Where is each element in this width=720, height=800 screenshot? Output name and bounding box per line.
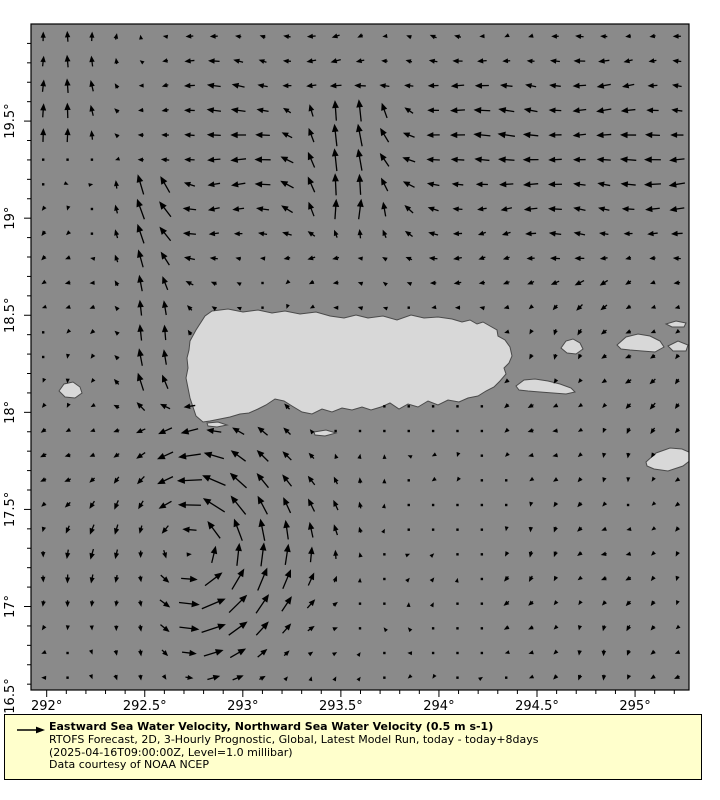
x-tick-label: 295°: [619, 699, 650, 714]
y-tick-label: 18°: [3, 401, 18, 424]
x-tick-label: 293°: [227, 699, 258, 714]
map-plot: 292°292.5°293°293.5°294°294.5°295°19.5°1…: [0, 0, 720, 720]
legend-box: Eastward Sea Water Velocity, Northward S…: [4, 714, 702, 780]
x-tick-label: 294.5°: [515, 699, 559, 714]
y-tick-label: 17.5°: [3, 492, 18, 527]
x-tick-label: 293.5°: [319, 699, 363, 714]
legend-text: Eastward Sea Water Velocity, Northward S…: [49, 721, 539, 772]
y-tick-label: 19.5°: [3, 103, 18, 138]
x-tick-label: 294°: [423, 699, 454, 714]
y-tick-label: 17°: [3, 595, 18, 618]
y-tick-label: 18.5°: [3, 298, 18, 333]
y-tick-label: 19°: [3, 207, 18, 230]
x-tick-label: 292.5°: [123, 699, 167, 714]
y-tick-label: 16.5°: [3, 678, 18, 713]
reference-arrow-icon: [15, 724, 47, 736]
quiver-plot-figure: 292°292.5°293°293.5°294°294.5°295°19.5°1…: [0, 0, 720, 800]
x-tick-label: 292°: [31, 699, 62, 714]
legend-credit: Data courtesy of NOAA NCEP: [49, 759, 539, 772]
legend-subtitle: RTOFS Forecast, 2D, 3-Hourly Prognostic,…: [49, 734, 539, 747]
legend-title: Eastward Sea Water Velocity, Northward S…: [49, 721, 539, 734]
